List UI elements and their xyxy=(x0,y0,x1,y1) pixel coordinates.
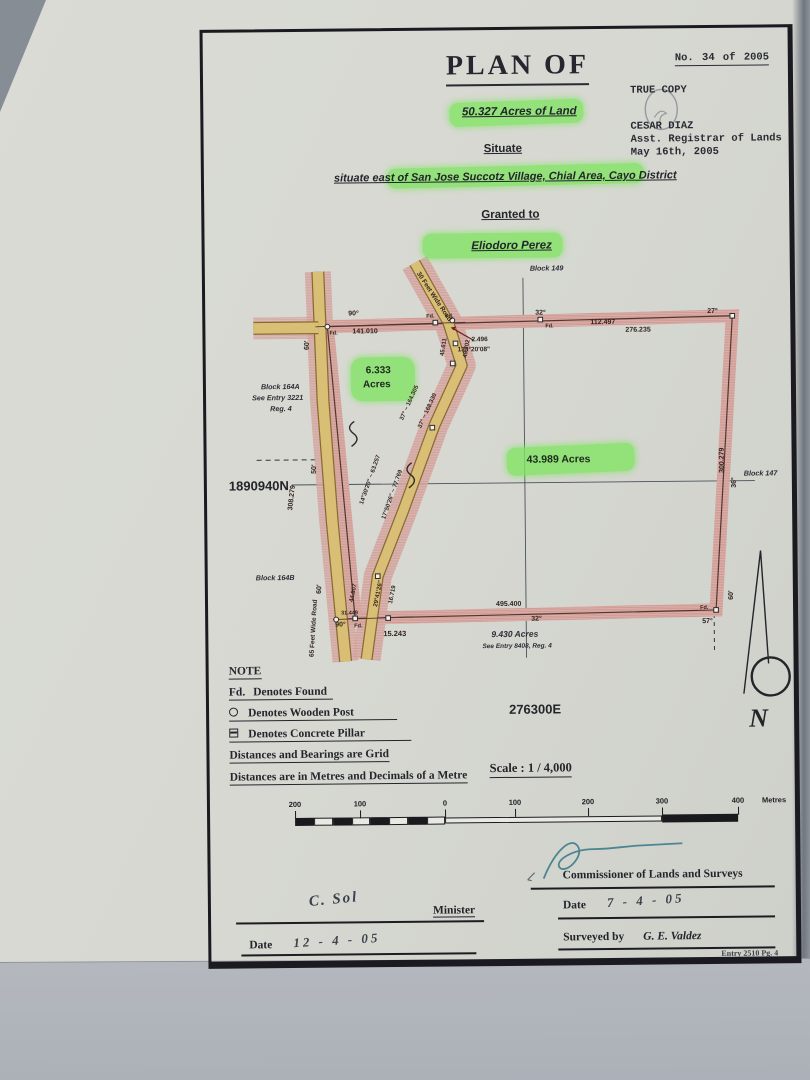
scale-tick-mark xyxy=(445,810,446,818)
surveyed-by-label: Surveyed by xyxy=(563,931,624,944)
angle-bottom: 32° xyxy=(531,616,542,623)
angle-bottom-right: 57° xyxy=(702,618,713,625)
road-width-top: 60' xyxy=(304,340,311,350)
plan-frame: PLAN OF No. 34 of 2005 TRUE COPY CESAR D… xyxy=(200,24,802,969)
found-text: Denotes Found xyxy=(253,686,327,699)
scale-bar-segment xyxy=(370,817,389,825)
registrar-date: May 16th, 2005 xyxy=(631,146,719,159)
page-title: PLAN OF xyxy=(446,49,589,86)
north-arrow-icon xyxy=(743,550,790,695)
scale-tick-mark xyxy=(738,807,739,815)
note-title: NOTE xyxy=(229,665,262,679)
paper-bottom-shadow xyxy=(0,958,810,1080)
angle-top-mid: 32° xyxy=(535,310,546,317)
scale-bar-segment xyxy=(427,817,445,825)
acres-9-entry: See Entry 8408, Reg. 4 xyxy=(482,643,551,651)
note-wooden-post-row: Denotes Wooden Post xyxy=(229,706,397,722)
photo-canvas: PLAN OF No. 34 of 2005 TRUE COPY CESAR D… xyxy=(0,0,810,1080)
fd-marker-label: Fd. xyxy=(545,323,553,329)
road-stub xyxy=(253,328,318,329)
scale-unit: Metres xyxy=(762,795,786,804)
registrar-title: Asst. Registrar of Lands xyxy=(631,132,782,145)
note-metric-row: Distances are in Metres and Decimals of … xyxy=(230,769,468,785)
dist-bottom: 495.400 xyxy=(496,601,521,608)
situate-label: Situate xyxy=(484,143,522,155)
scale-tick-400: 400 xyxy=(732,796,745,805)
tick-check-icon xyxy=(528,873,535,881)
scale-tick-100l: 100 xyxy=(354,799,367,808)
true-copy-stamp-text: TRUE COPY xyxy=(630,84,687,97)
dist-right: 300.279 xyxy=(719,448,726,473)
scale-tick-200l: 200 xyxy=(289,800,302,809)
acres-6-value: 6.333 xyxy=(366,365,391,376)
block-164a-name: Block 164A xyxy=(261,382,300,391)
fd-marker-label: Fd. xyxy=(329,331,337,337)
doc-number: No. 34 of 2005 xyxy=(675,51,769,66)
block-149-label: Block 149 xyxy=(530,263,564,272)
acres-9-label: 9.430 Acres xyxy=(491,629,538,639)
acres-6-unit: Acres xyxy=(363,379,391,390)
scale-tick-mark xyxy=(515,809,516,817)
width-bottom-right: 60' xyxy=(728,590,735,600)
block-164b-label: Block 164B xyxy=(256,573,295,582)
fd-marker-label: Fd. xyxy=(700,605,708,611)
grid-easting-label: 276300E xyxy=(509,701,561,716)
concrete-pillar-text: Denotes Concrete Pillar xyxy=(248,727,365,740)
footer-note-clipped: Entry 2510 Pg. 4 xyxy=(721,948,778,958)
fd-marker-label: Fd. xyxy=(426,314,434,320)
block-164a-reg: Reg. 4 xyxy=(270,404,292,413)
angle-bottom-left: 90° xyxy=(335,621,346,628)
scale-bar-segment xyxy=(389,817,408,825)
road-width-low: 60' xyxy=(316,584,323,594)
squiggle-mark-1 xyxy=(350,421,358,446)
note-concrete-pillar-row: Denotes Concrete Pillar xyxy=(229,727,411,743)
grantee-name: Eliodoro Perez xyxy=(457,239,567,252)
scale-tick-100r: 100 xyxy=(509,798,522,807)
granted-to-label: Granted to xyxy=(481,209,539,222)
dist-top-1: 141.010 xyxy=(352,328,377,335)
commissioner-label: Commissioner of Lands and Surveys xyxy=(563,868,743,882)
scale-bar-segment xyxy=(295,818,314,826)
note-grid-row: Distances and Bearings are Grid xyxy=(229,748,389,764)
angle-top-right: 27° xyxy=(707,308,718,315)
commissioner-date-label: Date xyxy=(563,899,586,911)
acres-main-label: 43.989 Acres xyxy=(527,453,591,466)
dist-top-2: 112.497 xyxy=(590,319,615,326)
scale-tick-200r: 200 xyxy=(582,797,595,806)
grid-northing-label: 1890940N xyxy=(229,478,289,494)
scale-tick-0: 0 xyxy=(443,799,447,808)
north-letter: N xyxy=(749,703,768,733)
road-width-mid: 50' xyxy=(311,464,318,474)
scale-bar-segment xyxy=(352,817,370,825)
spur-distance: 2.496 xyxy=(471,336,487,343)
note-found-row: Fd.Denotes Found xyxy=(229,686,333,701)
scale-tick-mark xyxy=(295,811,296,819)
surveyor-name: G. E. Valdez xyxy=(643,930,701,943)
gridline-horizontal xyxy=(292,481,755,485)
angle-top-left: 90° xyxy=(348,310,359,317)
acreage-text: 50.327 Acres of Land xyxy=(455,105,583,118)
minister-label: Minister xyxy=(433,904,475,917)
dist-bl-2: 31.449 xyxy=(341,610,358,616)
wooden-post-text: Denotes Wooden Post xyxy=(248,706,354,719)
found-abbrev: Fd. xyxy=(229,686,245,698)
block-147-label: Block 147 xyxy=(744,468,778,477)
minister-date-label: Date xyxy=(249,939,272,951)
wooden-post-icon xyxy=(229,708,238,717)
block-164a-entry: See Entry 3221 xyxy=(252,393,303,402)
scale-tick-mark xyxy=(360,810,361,818)
scale-tick-mark xyxy=(588,808,589,816)
scale-bar-solid-segment xyxy=(662,814,738,823)
dist-top-3: 276.235 xyxy=(625,327,650,334)
angle-right: 36° xyxy=(731,477,738,488)
scale-bar-segment xyxy=(408,817,427,825)
concrete-pillar-icon xyxy=(229,729,238,738)
scale-bar-segment xyxy=(333,817,352,825)
dist-bottom-left: 15.243 xyxy=(383,629,406,638)
dashed-tie-line xyxy=(257,460,317,461)
registrar-name: CESAR DIAZ xyxy=(630,120,693,133)
scale-tick-300: 300 xyxy=(656,796,669,805)
scale-label: Scale : 1 / 4,000 xyxy=(490,760,572,778)
scale-bar-segment xyxy=(314,818,333,826)
scale-tick-mark xyxy=(662,807,663,815)
fd-marker-label: Fd. xyxy=(354,623,362,629)
